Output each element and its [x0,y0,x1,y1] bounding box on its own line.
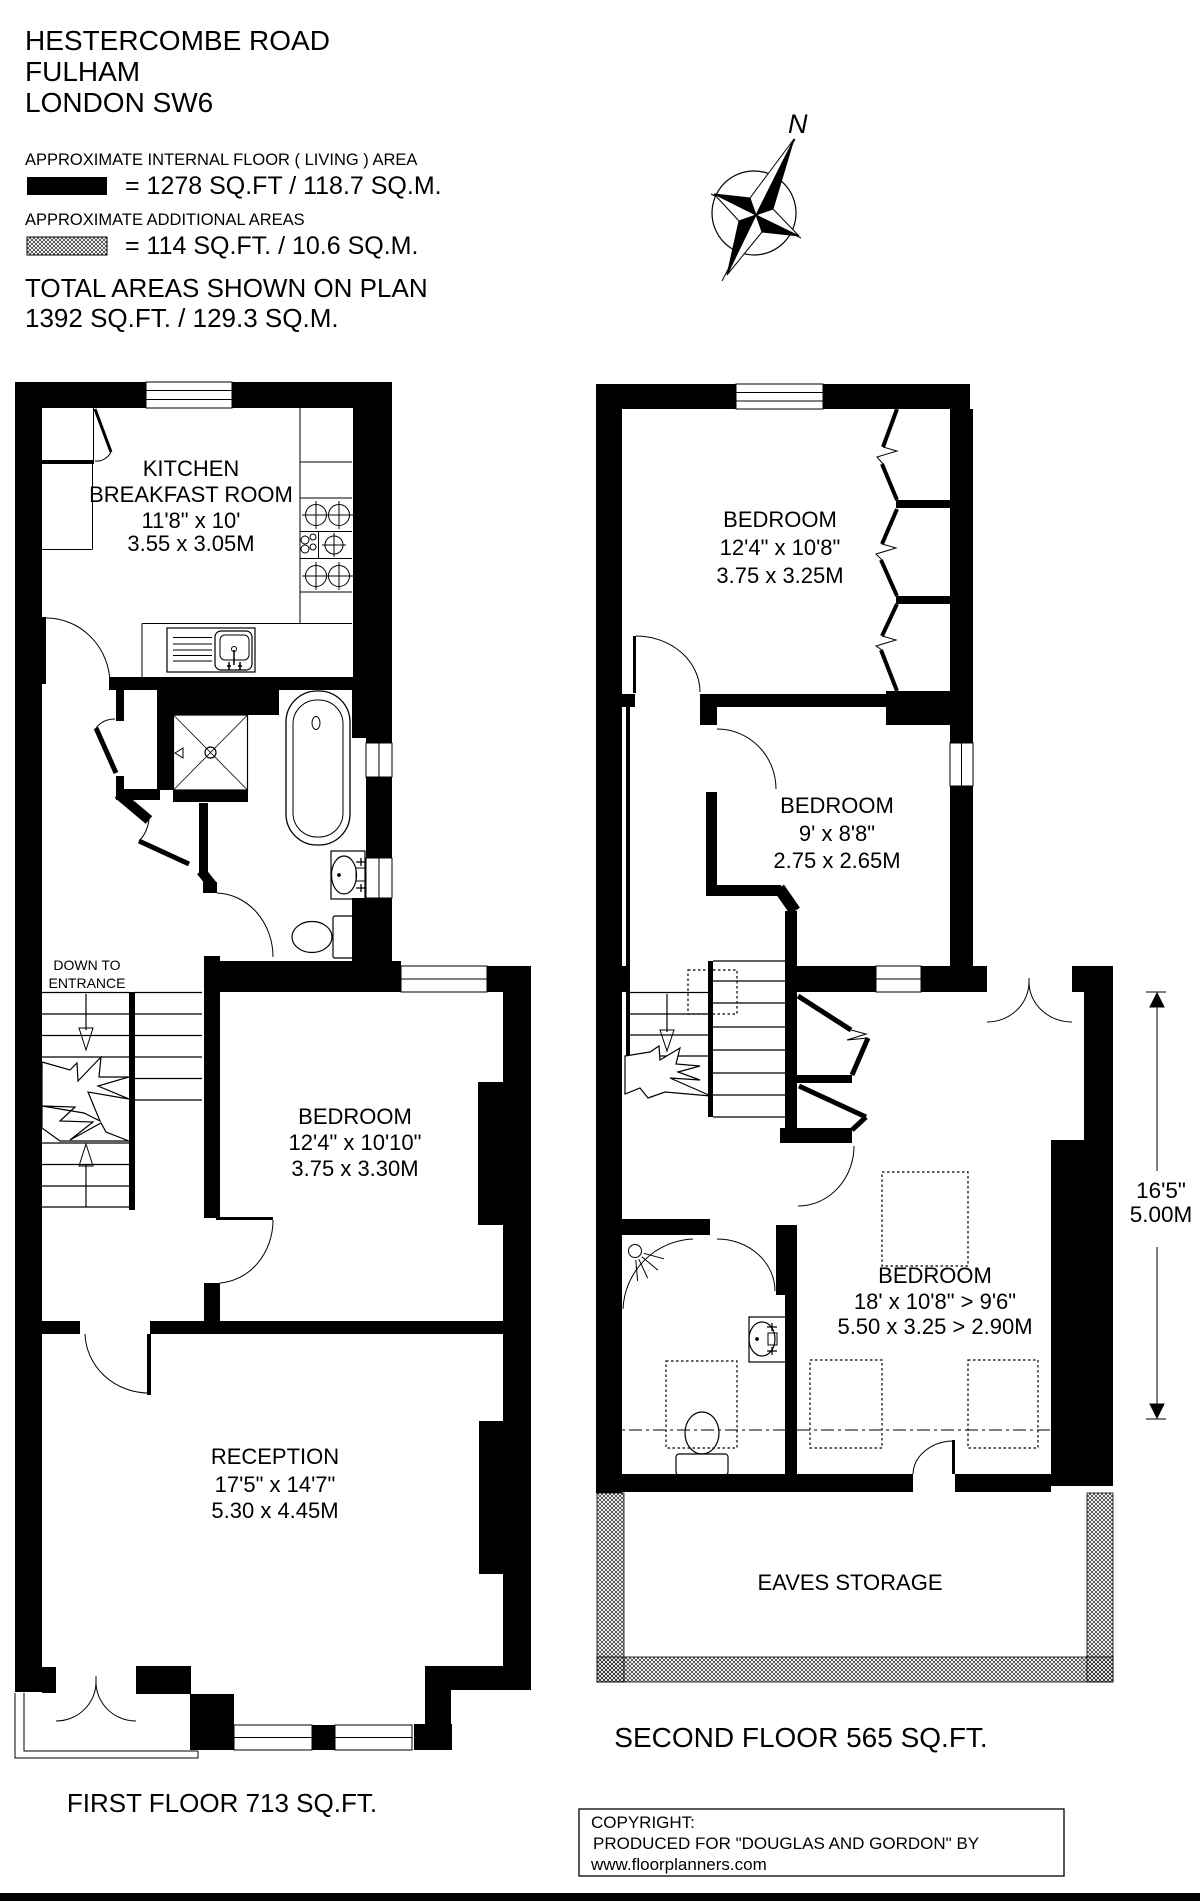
svg-text:EAVES STORAGE: EAVES STORAGE [757,1570,942,1595]
svg-text:3.55 x 3.05M: 3.55 x 3.05M [127,531,254,556]
svg-text:BEDROOM: BEDROOM [298,1104,412,1129]
svg-text:1392 SQ.FT. / 129.3 SQ.M.: 1392 SQ.FT. / 129.3 SQ.M. [25,303,339,333]
svg-text:2.75 x 2.65M: 2.75 x 2.65M [773,848,900,873]
svg-text:FULHAM: FULHAM [25,56,140,87]
svg-text:5.30 x 4.45M: 5.30 x 4.45M [211,1498,338,1523]
svg-text:KITCHEN: KITCHEN [143,456,240,481]
svg-text:11'8" x 10': 11'8" x 10' [142,508,241,533]
svg-text:16'5": 16'5" [1136,1178,1186,1203]
svg-text:3.75 x 3.25M: 3.75 x 3.25M [716,563,843,588]
svg-text:APPROXIMATE INTERNAL FLOOR ( L: APPROXIMATE INTERNAL FLOOR ( LIVING ) AR… [25,151,417,169]
svg-text:www.floorplanners.com: www.floorplanners.com [590,1855,767,1874]
svg-text:BEDROOM: BEDROOM [878,1263,992,1288]
svg-text:SECOND FLOOR 565 SQ.FT.: SECOND FLOOR 565 SQ.FT. [614,1722,987,1753]
svg-text:LONDON SW6: LONDON SW6 [25,87,213,118]
svg-text:HESTERCOMBE ROAD: HESTERCOMBE ROAD [25,25,330,56]
svg-text:17'5" x 14'7": 17'5" x 14'7" [215,1472,336,1497]
svg-text:9' x 8'8": 9' x 8'8" [799,821,875,846]
svg-text:FIRST FLOOR 713 SQ.FT.: FIRST FLOOR 713 SQ.FT. [67,1788,377,1818]
svg-text:TOTAL AREAS SHOWN ON PLAN: TOTAL AREAS SHOWN ON PLAN [25,273,428,303]
svg-text:APPROXIMATE ADDITIONAL AREAS: APPROXIMATE ADDITIONAL AREAS [25,211,305,229]
svg-text:5.50 x 3.25 > 2.90M: 5.50 x 3.25 > 2.90M [837,1314,1032,1339]
svg-text:BEDROOM: BEDROOM [723,507,837,532]
svg-text:18' x 10'8" > 9'6": 18' x 10'8" > 9'6" [854,1289,1016,1314]
svg-text:5.00M: 5.00M [1130,1202,1193,1227]
svg-text:= 114 SQ.FT. / 10.6 SQ.M.: = 114 SQ.FT. / 10.6 SQ.M. [125,232,418,260]
svg-text:ENTRANCE: ENTRANCE [48,975,125,991]
svg-text:BEDROOM: BEDROOM [780,793,894,818]
svg-text:PRODUCED FOR "DOUGLAS AND GORD: PRODUCED FOR "DOUGLAS AND GORDON" BY [593,1834,979,1853]
svg-text:3.75 x 3.30M: 3.75 x 3.30M [291,1156,418,1181]
svg-text:BREAKFAST ROOM: BREAKFAST ROOM [89,482,293,507]
svg-text:12'4" x 10'8": 12'4" x 10'8" [720,535,841,560]
svg-text:COPYRIGHT:: COPYRIGHT: [591,1813,695,1832]
svg-text:= 1278 SQ.FT / 118.7 SQ.M.: = 1278 SQ.FT / 118.7 SQ.M. [125,172,442,200]
svg-text:DOWN TO: DOWN TO [53,957,120,973]
svg-text:12'4" x 10'10": 12'4" x 10'10" [289,1130,422,1155]
svg-text:N: N [788,109,808,139]
svg-text:RECEPTION: RECEPTION [211,1444,339,1469]
